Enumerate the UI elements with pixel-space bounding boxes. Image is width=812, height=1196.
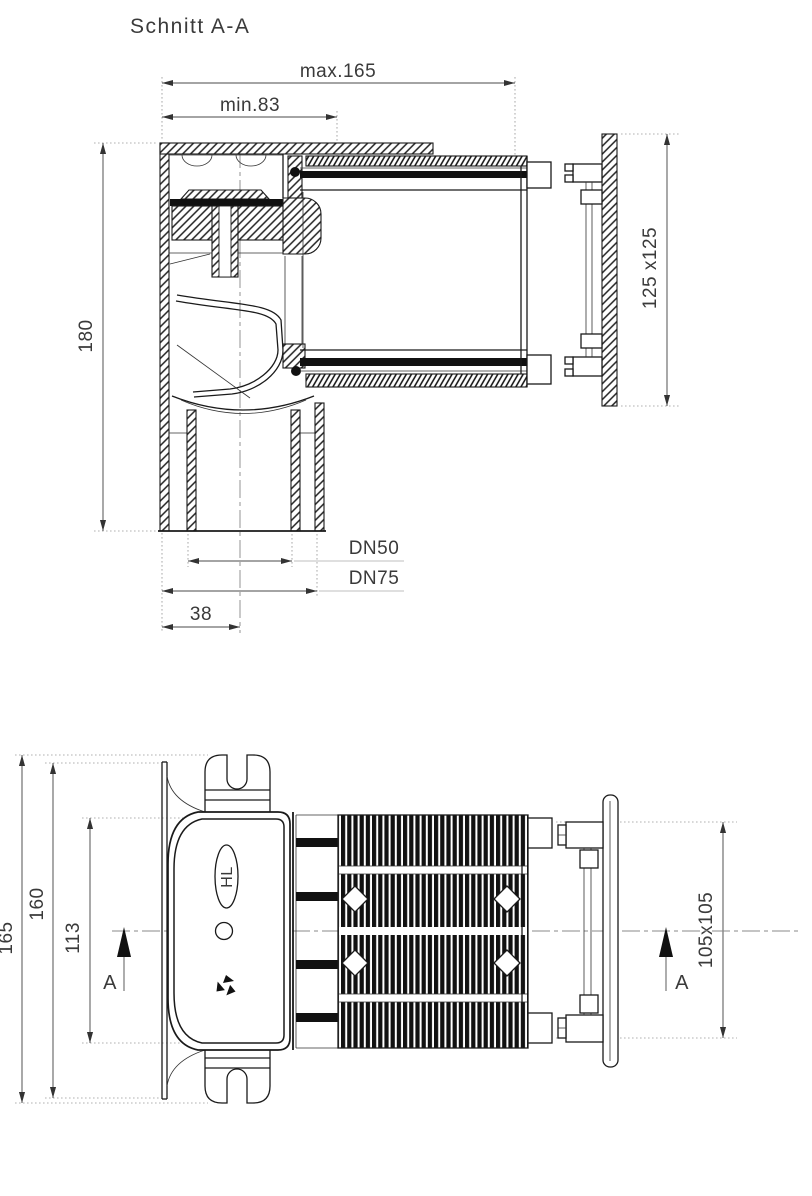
dim-overall-165: 165 (0, 755, 22, 1103)
dim-offset-38: 38 (162, 604, 240, 627)
drawing-canvas: Schnitt A-A max.165 min.83 180 (0, 0, 812, 1196)
gasket-bar (170, 199, 290, 206)
outlet-bell-inner (181, 400, 306, 414)
section-view: max.165 min.83 180 125 x125 DN50 DN75 38 (76, 61, 681, 633)
flap-membrane-inner (176, 301, 278, 392)
dim-flange-105-label: 105x105 (696, 892, 717, 968)
pipe-stub-bottom (527, 355, 551, 384)
drawing-title: Schnitt A-A (130, 15, 250, 38)
dim-min-width: min.83 (162, 95, 337, 117)
dim-height-label: 180 (76, 319, 97, 352)
technical-drawing-page: Schnitt A-A max.165 min.83 180 (0, 0, 812, 1196)
dim-body-label: 113 (63, 922, 84, 954)
pipe-wall-bottom (300, 358, 527, 366)
sleeve-stub-top (528, 818, 552, 848)
housing-section (158, 143, 433, 531)
dim-dn75-label: DN75 (349, 568, 400, 589)
dim-dn50: DN50 (188, 538, 404, 561)
housing-top-cap (160, 143, 433, 154)
dim-offset-label: 38 (190, 604, 212, 625)
mounting-tab-top (205, 755, 270, 812)
socket-block (283, 198, 321, 254)
pipe-wall-top (300, 171, 527, 178)
section-marker-right: A (659, 927, 689, 994)
dim-overall-label: 165 (0, 921, 17, 954)
mounting-tab-bottom (205, 1050, 270, 1103)
outlet-outer-wall-right (315, 403, 324, 531)
outlet-bell-outer (172, 396, 314, 410)
seal-ring-top (290, 167, 300, 177)
dim-max-width-label: max.165 (300, 61, 376, 82)
pipe-rib-band-top (306, 156, 527, 166)
flange-plate-bottom (603, 795, 618, 1067)
dim-flange-125: 125 x125 (640, 134, 667, 406)
dim-flange-105: 105x105 (696, 822, 723, 1038)
dim-flange-label: 125 x125 (640, 227, 661, 309)
flange-clip-top (581, 190, 602, 204)
sleeve-stub-bottom (528, 1013, 552, 1043)
flange-clip-bottom (581, 334, 602, 348)
section-arrow-left (117, 927, 131, 957)
brand-logo: HL (219, 866, 236, 887)
pipe-stub-top (527, 162, 551, 188)
section-marker-left: A (103, 927, 131, 994)
dim-plate-160: 160 (27, 763, 53, 1098)
seal-ring-bottom (291, 366, 301, 376)
outlet-inner-wall-right (291, 410, 300, 531)
housing-left-wall (160, 143, 169, 531)
insert-stem-bore (219, 206, 231, 277)
dim-height-180: 180 (76, 143, 103, 531)
dim-min-width-label: min.83 (220, 95, 280, 116)
flange-clip-bottom-bottomview (580, 995, 598, 1013)
flap-membrane-outer (177, 295, 283, 397)
flange-plate-section (602, 134, 617, 406)
dim-plate-label: 160 (27, 887, 48, 920)
dim-body-113: 113 (63, 818, 90, 1043)
pipe-rib-band-bottom (306, 374, 527, 387)
bottom-view: 165 160 113 105x105 A A (0, 755, 800, 1103)
flange-clip-top-bottomview (580, 850, 598, 868)
dim-dn75: DN75 (162, 568, 404, 591)
flange-stub-top-bottomview (566, 822, 603, 848)
corrugated-sleeve (338, 815, 552, 1048)
wall-flange-section (565, 134, 617, 406)
outlet-inner-wall-left (187, 410, 196, 531)
section-arrow-right (659, 927, 673, 957)
flange-stub-bottom-bottomview (566, 1015, 603, 1042)
flange-stub-bottom (573, 357, 602, 376)
dim-dn50-label: DN50 (349, 538, 400, 559)
dim-max-width: max.165 (162, 61, 515, 83)
section-marker-right-label: A (675, 972, 689, 994)
insert-cap (181, 190, 269, 199)
flange-stub-top (573, 164, 602, 182)
body-outline (168, 812, 290, 1050)
telescopic-pipe-section (300, 156, 551, 387)
section-marker-left-label: A (103, 972, 117, 994)
drain-body-bottom: HL (168, 812, 338, 1050)
